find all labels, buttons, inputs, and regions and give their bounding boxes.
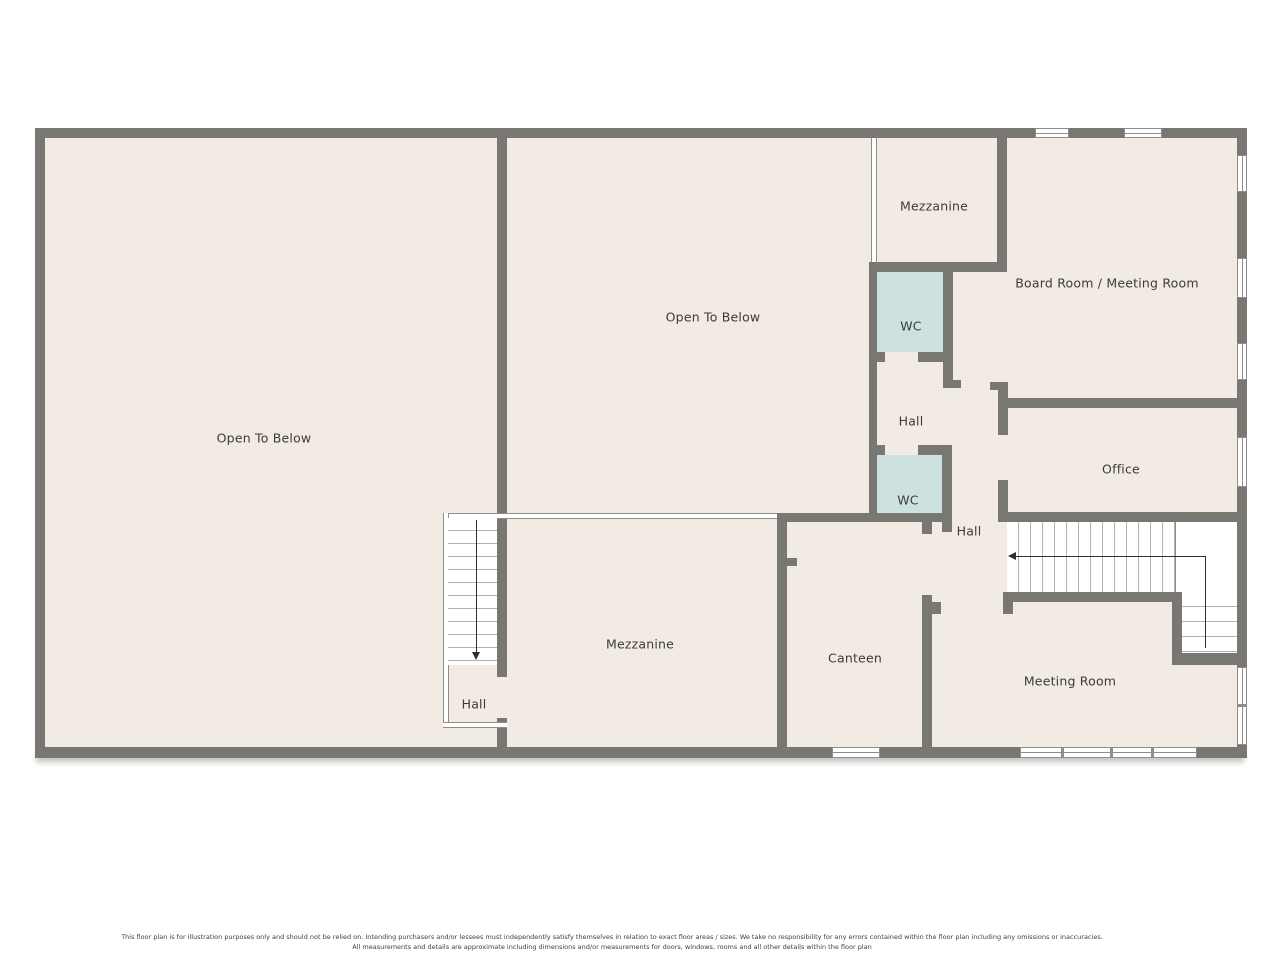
staircase-upper-treads (1007, 522, 1177, 592)
outer-wall-left (35, 128, 45, 758)
window-right-boardroom-2 (1237, 258, 1247, 298)
staircase-upper-nosing-line (1175, 522, 1176, 592)
staircase-direction-arrow-icon (1008, 552, 1016, 560)
wall-mezzanine-canteen-divider (777, 513, 787, 747)
window-bottom-mullion-3 (1151, 747, 1154, 758)
wall-office-bottom (1003, 512, 1237, 522)
staircase-return-treads (1182, 592, 1237, 653)
window-right-meeting-mullion (1237, 704, 1247, 707)
room-label-wc-lower: WC (897, 493, 919, 508)
room-label-mezzanine-upper: Mezzanine (900, 199, 968, 214)
disclaimer-line-1: This floor plan is for illustration purp… (0, 932, 1224, 942)
wall-stair-return-bottom (1172, 653, 1237, 665)
window-bottom-mullion-1 (1061, 747, 1064, 758)
wall-canteen-top (777, 513, 952, 522)
floor-plan-page: Open To Below Open To Below Mezzanine WC… (0, 0, 1280, 960)
window-top-2 (1124, 128, 1162, 138)
room-label-hall-upper: Hall (899, 414, 924, 429)
room-label-canteen: Canteen (828, 651, 882, 666)
room-label-mezzanine-lower: Mezzanine (606, 637, 674, 652)
railing-hall-lower-bottom (443, 722, 507, 728)
wall-wc-upper-right (943, 272, 953, 362)
wall-office-left-foot (990, 382, 998, 390)
wall-board-office-divider (1008, 398, 1237, 408)
room-label-hall-lower: Hall (462, 697, 487, 712)
window-right-boardroom-1 (1237, 155, 1247, 192)
wall-wc-upper-door-jamb (943, 362, 953, 388)
wall-wc-upper-bottom-right (918, 352, 953, 362)
railing-mezzanine-upper-edge (871, 138, 877, 262)
staircase-lower-treads (448, 518, 497, 665)
window-top-1 (1035, 128, 1069, 138)
room-label-open-to-below-center: Open To Below (666, 310, 761, 325)
window-bottom-meeting-room (1020, 747, 1197, 758)
room-wc-upper-fill (877, 272, 943, 352)
wall-mezzanine-upper-bottom (872, 262, 1007, 272)
wall-stairs-bottom-stub (1003, 602, 1013, 614)
staircase-direction-line-horizontal (1016, 556, 1206, 557)
staircase-direction-line-vertical (1205, 556, 1206, 648)
window-right-boardroom-3 (1237, 343, 1247, 380)
staircase-lower-direction-line (476, 520, 477, 654)
window-bottom-canteen (832, 747, 880, 758)
disclaimer: This floor plan is for illustration purp… (0, 932, 1224, 952)
wall-stairs-bottom (1003, 592, 1172, 602)
wall-canteen-meeting-divider (922, 595, 932, 747)
room-label-wc-upper: WC (900, 319, 922, 334)
staircase-lower-direction-arrow-icon (472, 652, 480, 660)
room-label-open-to-below-left: Open To Below (217, 431, 312, 446)
wall-mezzanine-upper-right (997, 138, 1007, 272)
room-label-office: Office (1102, 462, 1140, 477)
wall-office-left-upper (998, 382, 1008, 435)
wall-meeting-door-jamb (932, 602, 941, 614)
wall-wc-block-left (869, 262, 877, 515)
window-right-office (1237, 437, 1247, 487)
wall-wc-upper-bottom-left (872, 352, 885, 362)
wall-wc-upper-door-jamb-foot (953, 380, 961, 388)
disclaimer-line-2: All measurements and details are approxi… (0, 942, 1224, 952)
wall-canteen-meeting-stub (922, 522, 932, 534)
room-label-hall-mid: Hall (957, 524, 982, 539)
room-label-board-room: Board Room / Meeting Room (1015, 276, 1198, 291)
wall-wc-lower-top-left (869, 445, 885, 455)
room-label-meeting-room: Meeting Room (1024, 674, 1116, 689)
window-bottom-mullion-2 (1110, 747, 1113, 758)
wall-canteen-door-jamb (787, 558, 797, 566)
wall-main-divider-upper (497, 138, 507, 677)
